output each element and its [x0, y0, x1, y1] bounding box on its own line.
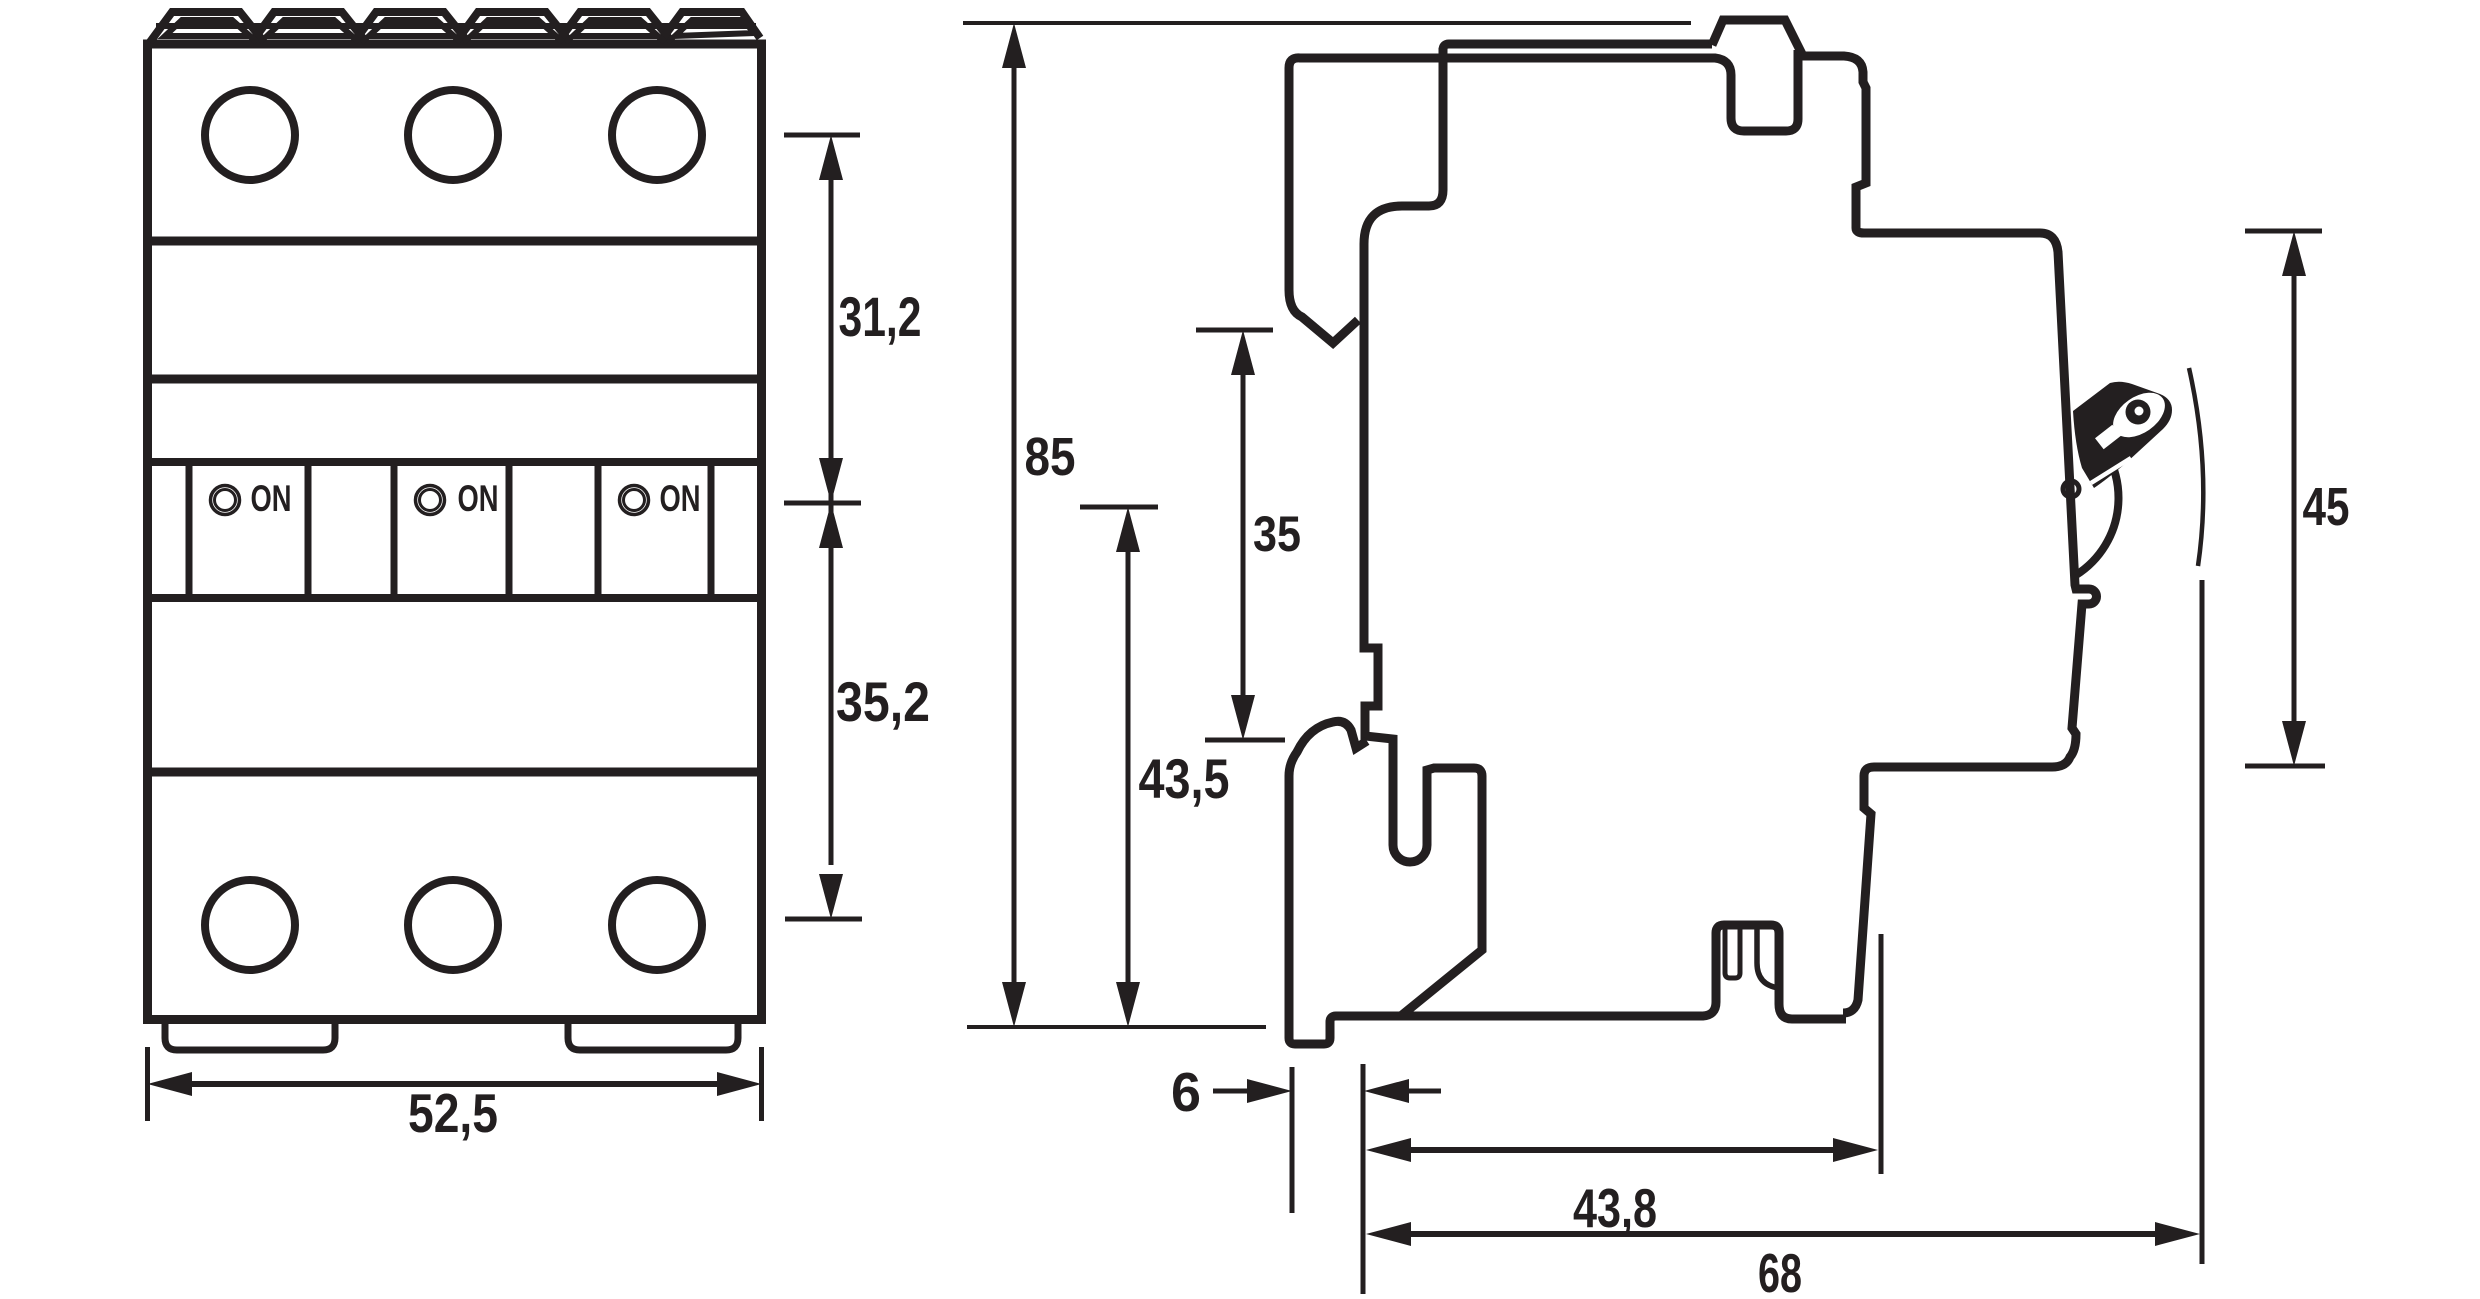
svg-text:35: 35: [1253, 506, 1301, 562]
svg-text:85: 85: [1025, 427, 1076, 487]
svg-text:31,2: 31,2: [839, 285, 922, 348]
svg-text:ON: ON: [251, 478, 292, 519]
svg-text:43,5: 43,5: [1139, 747, 1230, 810]
svg-text:ON: ON: [660, 478, 701, 519]
svg-text:68: 68: [1758, 1242, 1802, 1299]
svg-text:43,8: 43,8: [1573, 1177, 1657, 1239]
svg-text:52,5: 52,5: [408, 1082, 498, 1144]
svg-text:6: 6: [1171, 1061, 1201, 1123]
svg-text:ON: ON: [458, 478, 499, 519]
svg-text:35,2: 35,2: [836, 670, 930, 733]
svg-text:45: 45: [2303, 477, 2350, 537]
